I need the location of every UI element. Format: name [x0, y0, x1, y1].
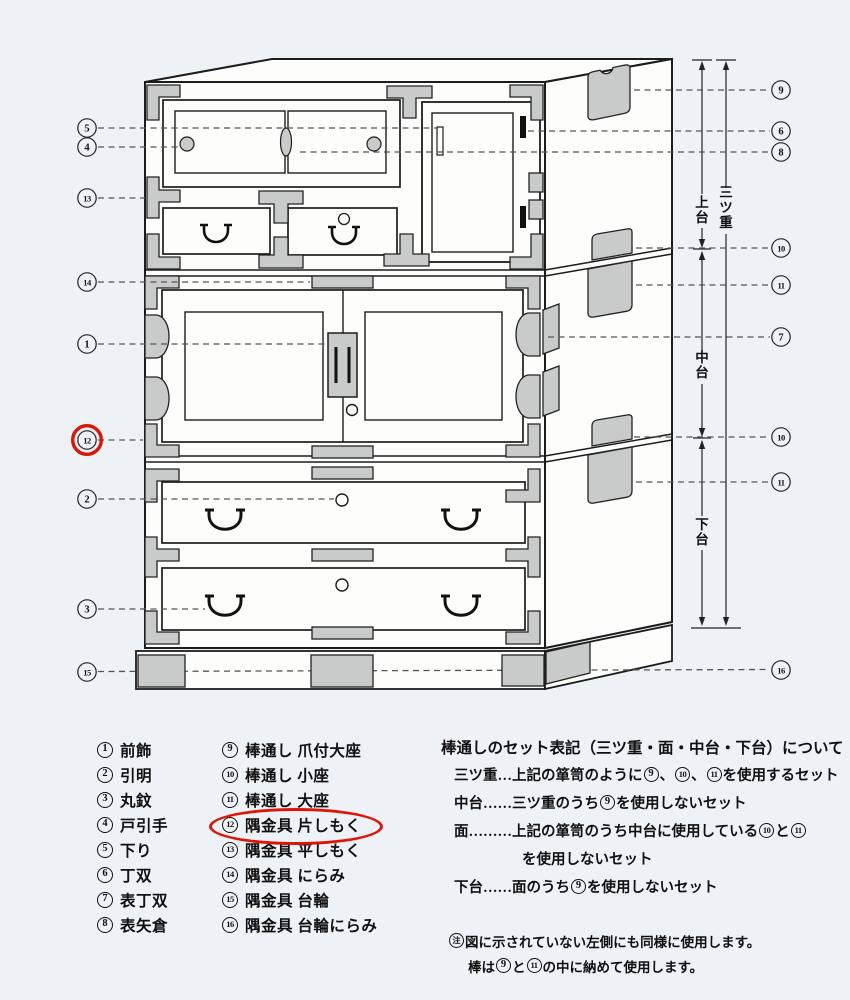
rod-plate-large-lower [588, 447, 632, 503]
niramu-bar [312, 467, 373, 479]
circled-number: 9 [496, 958, 511, 973]
legend-item-label: 隅金具 にらみ [245, 864, 345, 886]
legend-item: 3丸鈫 [97, 787, 168, 812]
svg-text:10: 10 [777, 433, 785, 443]
legend-item-number: 6 [97, 867, 113, 883]
legend-item-number: 9 [222, 742, 238, 758]
svg-text:下: 下 [695, 517, 709, 532]
legend-item-number: 14 [222, 867, 238, 883]
callout-12: 12 [73, 426, 143, 455]
legend-item-number: 2 [97, 767, 113, 783]
legend-item-label: 下り [120, 839, 152, 861]
svg-text:5: 5 [84, 124, 89, 135]
front-ornament-plate [328, 333, 357, 397]
circled-number: 11 [707, 767, 722, 782]
footnote-line: 棒は9と11の中に納めて使用します。 [441, 953, 845, 978]
svg-text:台: 台 [695, 364, 709, 380]
legend-item-label: 戸引手 [120, 814, 168, 836]
legend-item-label: 隅金具 片しもく [245, 814, 361, 836]
door-pull-right [367, 137, 381, 151]
legend-item: 10棒通し 小座 [222, 762, 377, 787]
callout-13: 13 [78, 189, 145, 207]
svg-text:4: 4 [84, 143, 90, 154]
note-line: 下台……面のうち9を使用しないセット [441, 872, 845, 900]
hinge-upper [520, 116, 526, 138]
circled-number: 11 [527, 958, 542, 973]
legend-item-number: 1 [97, 742, 113, 758]
hinge-lower [520, 206, 526, 228]
legend-item: 6丁双 [97, 862, 168, 887]
tansu-hardware-diagram: 上台中台下台三ツ重 541314112231596810117101116 [0, 0, 850, 730]
legend-item-label: 表矢倉 [120, 914, 168, 936]
niramu-bar [312, 446, 373, 458]
svg-text:3: 3 [84, 605, 89, 616]
legend-item: 5下り [97, 837, 168, 862]
notes-block: 棒通しのセット表記（三ツ重・面・中台・下台）について 三ツ重…上記の箪笥のように… [441, 733, 845, 978]
svg-text:2: 2 [84, 495, 89, 506]
scanned-diagram-page: 上台中台下台三ツ重 541314112231596810117101116 1前… [0, 0, 850, 1000]
base-bracket-center [311, 655, 373, 687]
legend-item-label: 丁双 [120, 864, 152, 886]
svg-text:12: 12 [83, 436, 91, 446]
legend-item-number: 11 [222, 792, 238, 808]
note-line: を使用しないセット [441, 844, 845, 872]
svg-text:上: 上 [695, 195, 709, 210]
cabinet-side-face [545, 59, 672, 648]
legend-item: 13隅金具 平しもく [222, 837, 377, 862]
svg-text:台: 台 [695, 209, 709, 225]
legend-item: 16隅金具 台輪にらみ [222, 912, 377, 937]
legend-item: 12隅金具 片しもく [222, 812, 377, 837]
legend-item: 9棒通し 爪付大座 [222, 737, 377, 762]
svg-text:重: 重 [719, 214, 733, 230]
legend-item-label: 棒通し 爪付大座 [245, 739, 361, 761]
notes-title: 棒通しのセット表記（三ツ重・面・中台・下台）について [441, 733, 845, 760]
circled-note-mark: 注 [449, 933, 464, 948]
legend-item-label: 隅金具 台輪 [245, 889, 329, 911]
legend-column-right: 9棒通し 爪付大座10棒通し 小座11棒通し 大座12隅金具 片しもく13隅金具… [222, 737, 377, 937]
hinge-d-bracket [516, 313, 540, 356]
legend-item: 4戸引手 [97, 812, 168, 837]
svg-text:15: 15 [83, 668, 91, 678]
legend-item-number: 13 [222, 842, 238, 858]
legend-item-label: 隅金具 平しもく [245, 839, 361, 861]
drop-pull [437, 127, 443, 155]
callout-16: 16 [772, 661, 790, 679]
svg-text:11: 11 [777, 478, 784, 488]
svg-text:11: 11 [777, 281, 784, 291]
rod-plate-large-upper [588, 261, 632, 317]
svg-text:7: 7 [778, 333, 783, 344]
hinge-side-wrap [543, 304, 559, 354]
legend-item-label: 丸鈫 [120, 789, 152, 811]
door-pull-left [180, 137, 194, 151]
svg-text:ツ: ツ [719, 200, 733, 215]
legend-item: 15隅金具 台輪 [222, 887, 377, 912]
edge-bracket [529, 173, 543, 192]
legend-item-number: 8 [97, 917, 113, 933]
circled-number: 11 [791, 823, 806, 838]
legend-item-number: 7 [97, 892, 113, 908]
legend-item-number: 12 [222, 817, 238, 833]
dimension-label-lower-unit: 下台 [695, 517, 709, 547]
svg-text:9: 9 [778, 86, 783, 97]
hinge-d-bracket [516, 375, 540, 418]
legend-column-left: 1前飾2引明3丸鈫4戸引手5下り6丁双7表丁双8表矢倉 [97, 737, 168, 937]
dimension-label-middle-unit: 中台 [695, 349, 709, 380]
svg-text:1: 1 [84, 340, 89, 351]
legend-item-number: 15 [222, 892, 238, 908]
note-line: 面………上記の箪笥のうち中台に使用している10と11 [441, 816, 845, 844]
svg-text:8: 8 [778, 148, 783, 159]
circled-number: 9 [600, 795, 615, 810]
svg-text:16: 16 [777, 666, 785, 676]
dimension-label-three-tier: 三ツ重 [719, 185, 733, 230]
circled-number: 10 [759, 823, 774, 838]
svg-text:6: 6 [778, 127, 783, 138]
edge-bracket [529, 200, 543, 219]
legend-item: 11棒通し 大座 [222, 787, 377, 812]
legend-item-label: 棒通し 小座 [245, 764, 329, 786]
svg-text:14: 14 [83, 278, 92, 288]
note-line: 中台……三ツ重のうち9を使用しないセット [441, 788, 845, 816]
legend-item-label: 表丁双 [120, 889, 168, 911]
legend-item-label: 隅金具 台輪にらみ [245, 914, 377, 936]
svg-text:台: 台 [695, 531, 709, 547]
callout-15: 15 [78, 663, 96, 681]
niramu-bar [312, 276, 373, 288]
dimension-label-upper-unit: 上台 [695, 195, 709, 225]
circled-number: 9 [644, 767, 659, 782]
legend-item-number: 3 [97, 792, 113, 808]
legend-item-label: 前飾 [120, 739, 152, 761]
legend-item: 2引明 [97, 762, 168, 787]
notes-lines: 三ツ重…上記の箪笥のように9、10、11を使用するセット中台……三ツ重のうち9を… [441, 760, 845, 900]
base-bracket-right [502, 655, 544, 686]
hinge-side-wrap [543, 366, 559, 416]
legend-item-number: 4 [97, 817, 113, 833]
legend-item-number: 10 [222, 767, 238, 783]
legend-item: 1前飾 [97, 737, 168, 762]
footnotes: 注図に示されていない左側にも同様に使用します。棒は9と11の中に納めて使用します… [441, 928, 845, 978]
legend-item: 14隅金具 にらみ [222, 862, 377, 887]
center-pull [281, 128, 292, 156]
niramu-bar [312, 627, 373, 639]
circled-number: 9 [571, 879, 586, 894]
svg-text:三: 三 [719, 185, 733, 200]
base-bracket-left [138, 655, 185, 687]
legend-item-number: 5 [97, 842, 113, 858]
niramu-bar [312, 549, 373, 561]
note-line: 三ツ重…上記の箪笥のように9、10、11を使用するセット [441, 760, 845, 788]
svg-text:13: 13 [83, 194, 91, 204]
legend-item-label: 引明 [120, 764, 152, 786]
svg-text:10: 10 [777, 244, 785, 254]
legend-item-number: 16 [222, 917, 238, 933]
legend-item-label: 棒通し 大座 [245, 789, 329, 811]
circled-number: 10 [675, 767, 690, 782]
legend-item: 8表矢倉 [97, 912, 168, 937]
footnote-line: 注図に示されていない左側にも同様に使用します。 [441, 928, 845, 953]
hinge-d-bracket [145, 377, 169, 420]
cabinet-body [136, 59, 672, 689]
rod-plate-claw-large [588, 65, 630, 120]
legend-item: 7表丁双 [97, 887, 168, 912]
svg-text:中: 中 [695, 349, 709, 365]
hinge-d-bracket [145, 315, 169, 358]
